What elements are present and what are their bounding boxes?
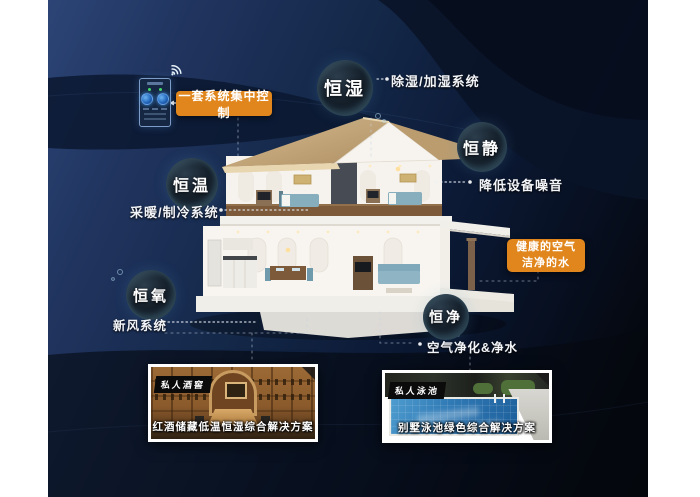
wifi-icon	[167, 62, 185, 78]
phone-titlebar	[147, 82, 163, 85]
pool-caption: 别墅泳池绿色综合解决方案	[385, 420, 549, 435]
photo-corner-mark	[302, 367, 315, 380]
highlight-line1: 健康的空气	[516, 240, 576, 255]
bubble-label: 恒氧	[133, 285, 169, 306]
status-dot	[159, 88, 162, 91]
dial-knob	[157, 93, 169, 105]
wine-cellar-tag: 私人酒窖	[154, 376, 212, 393]
pool-tag: 私人泳池	[388, 382, 446, 399]
control-panel-phone	[139, 78, 171, 127]
pool-bush	[473, 383, 493, 394]
phone-menu-line	[144, 118, 166, 120]
photo-wine-cellar: 私人酒窖 红酒储藏低温恒湿综合解决方案	[148, 364, 318, 442]
wine-cellar-image: 私人酒窖 红酒储藏低温恒湿综合解决方案	[151, 367, 315, 439]
bubble-label: 恒湿	[324, 75, 366, 101]
bubble-constant-humidity: 恒湿	[317, 60, 373, 116]
photo-corner-mark	[536, 373, 549, 386]
bubble-label: 恒净	[429, 307, 463, 327]
central-control-label: 一套系统集中控制	[176, 87, 272, 121]
dial-knob	[141, 93, 153, 105]
bubble-constant-oxygen: 恒氧	[126, 270, 176, 320]
label-dehumidify-system: 除湿/加湿系统	[391, 71, 480, 90]
phone-status-dots	[148, 88, 162, 91]
phone-readouts	[143, 108, 167, 110]
bubble-constant-clean: 恒净	[423, 294, 469, 340]
phone-menu-line	[144, 113, 166, 115]
bubble-label: 恒静	[463, 135, 501, 159]
healthy-air-water-box: 健康的空气 洁净的水	[507, 239, 585, 272]
pool-ladder	[494, 394, 505, 403]
label-air-water-purification: 空气净化&净水	[427, 337, 518, 356]
central-control-label-box: 一套系统集中控制	[176, 91, 272, 116]
bubble-label: 恒温	[173, 172, 211, 196]
highlight-line2: 洁净的水	[522, 256, 570, 271]
poster-canvas: 一套系统集中控制 恒湿 恒静 恒温 恒氧 恒净 除湿/加湿系统 降低设备噪音 采…	[48, 0, 648, 497]
label-heating-cooling-system: 采暖/制冷系统	[130, 202, 219, 221]
photo-private-pool: 私人泳池 别墅泳池绿色综合解决方案	[382, 370, 552, 443]
bubble-constant-quiet: 恒静	[457, 122, 507, 172]
status-dot	[148, 88, 151, 91]
phone-dials	[141, 93, 169, 105]
infographic-smart-home: 一套系统集中控制 恒湿 恒静 恒温 恒氧 恒净 除湿/加湿系统 降低设备噪音 采…	[0, 0, 700, 497]
label-noise-reduction: 降低设备噪音	[479, 175, 563, 194]
pool-image: 私人泳池 别墅泳池绿色综合解决方案	[385, 373, 549, 440]
wine-art-frame	[225, 382, 247, 399]
label-fresh-air-system: 新风系统	[113, 315, 167, 334]
wine-cellar-caption: 红酒储藏低温恒湿综合解决方案	[151, 419, 315, 434]
